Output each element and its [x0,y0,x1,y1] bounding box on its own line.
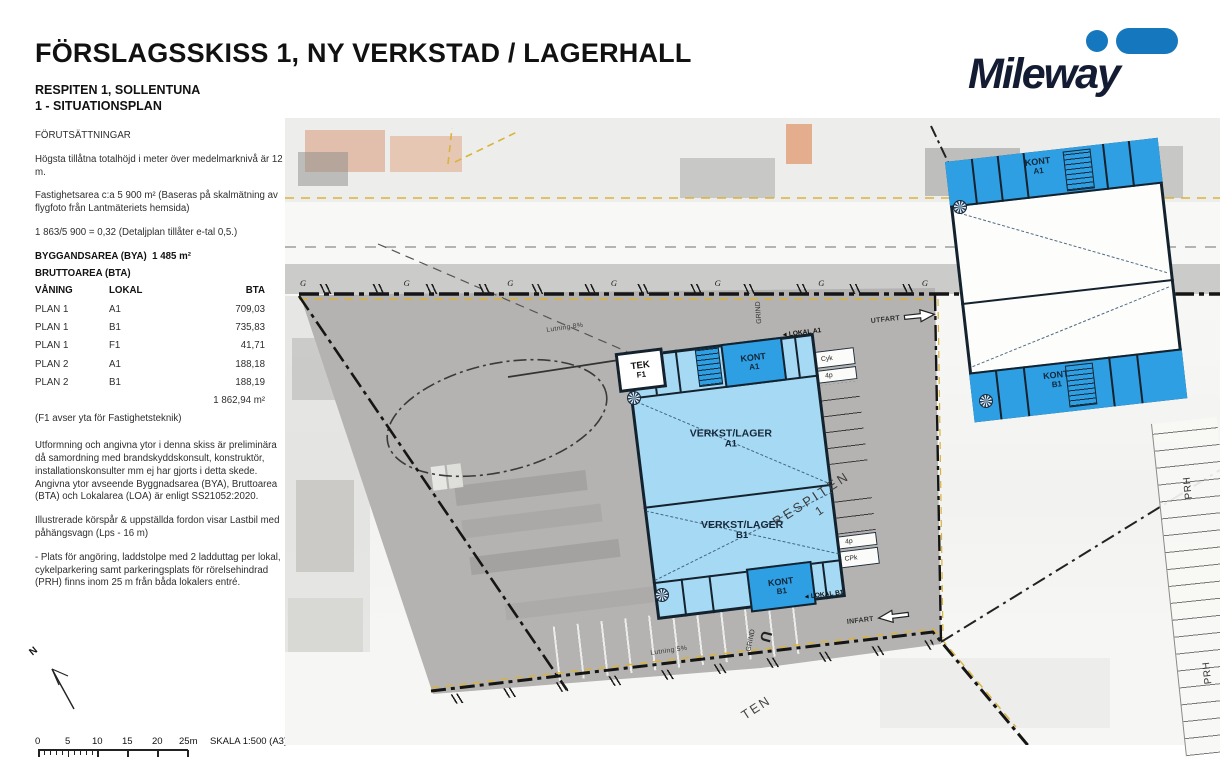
cell [109,395,173,408]
sheet-name: 1 - SITUATIONSPLAN [35,99,200,115]
g-mark: G [300,278,306,288]
cell: 41,71 [173,340,265,353]
note-disclaimer: Utformning och angivna ytor i denna skis… [35,440,287,504]
logo-dot-icon [1086,30,1108,52]
cell: PLAN 2 [35,359,109,372]
cyk-label: Cyk [821,355,833,363]
scale-tick-label: 5 [65,736,70,747]
bya-value: 1 485 m² [152,251,191,262]
scale-tick-label: 15 [122,736,133,747]
building-main: KONT A1 TEK F1 VERKST/LAGER A1 VERKST/LA… [625,333,846,620]
scale-bar-tick [38,750,40,757]
hall-unit: B1 [647,531,837,541]
prh-label: PRH [1182,476,1195,500]
lokal-arrow-icon: ◄ [803,593,810,601]
g-mark: G [922,278,928,288]
bya-label: BYGGANDSAREA (BYA) [35,251,147,262]
cpk-label: CPk [844,554,858,563]
note-parking: - Plats för angöring, laddstolpe med 2 l… [35,552,287,590]
table-total-row: 1 862,94 m² [35,395,287,408]
stair-symbol [695,347,723,388]
prh-label: PRH [1201,661,1214,685]
cell: B1 [109,322,173,335]
hall-unit: A1 [636,440,826,450]
utfart-label: UTFART [870,314,900,324]
col-vaning: VÅNING [35,285,109,298]
cell: F1 [109,340,173,353]
area-table-header: VÅNING LOKAL BTA [35,285,287,298]
hall-a1-label: VERKST/LAGER A1 [636,428,826,451]
project-name: RESPITEN 1, SOLLENTUNA [35,83,200,99]
table-row: PLAN 1A1709,03 [35,304,287,317]
g-mark: G [404,278,410,288]
subtitle-block: RESPITEN 1, SOLLENTUNA 1 - SITUATIONSPLA… [35,83,200,114]
note-etal: 1 863/5 900 = 0,32 (Detaljplan tillåter … [35,227,287,240]
scale-bar-tick [68,750,70,757]
g-mark: G [818,278,824,288]
col-bta: BTA [173,285,265,298]
p4-label: 4p [845,538,853,546]
cell: PLAN 1 [35,304,109,317]
cell: A1 [109,304,173,317]
column-symbol-icon [979,394,993,408]
notes-panel: FÖRUTSÄTTNINGAR Högsta tillåtna totalhöj… [35,130,287,601]
bta-heading: BRUTTOAREA (BTA) [35,268,287,281]
cell: 735,83 [173,322,265,335]
g-mark: G [507,278,513,288]
building-entresol: KONT A1 KONT B1 [945,138,1187,423]
p4-label: 4p [825,372,833,380]
fence-g-marks: GGGGGGG [300,278,928,288]
lokal-arrow-icon: ◄ [781,331,788,339]
scale-tick-label: 25m [179,736,197,747]
scale-bar-tick [187,750,189,757]
cell: 188,18 [173,359,265,372]
page-title: FÖRSLAGSSKISS 1, NY VERKSTAD / LAGERHALL [35,38,692,69]
column-symbol-icon [655,588,669,602]
company-logo: Mileway [968,24,1180,106]
notes-heading: FÖRUTSÄTTNINGAR [35,130,287,143]
table-row: PLAN 1F141,71 [35,340,287,353]
cell: PLAN 1 [35,322,109,335]
kont-a1-room: KONT A1 [720,337,787,388]
scale-bar-tick [97,750,99,757]
cell [35,395,109,408]
cell: B1 [109,377,173,390]
scale-tick-label: 20 [152,736,163,747]
area-table: VÅNING LOKAL BTA PLAN 1A1709,03 PLAN 1B1… [35,285,287,408]
drawing-sheet: FÖRSLAGSSKISS 1, NY VERKSTAD / LAGERHALL… [0,0,1220,764]
total-value: 1 862,94 m² [173,395,265,408]
column-symbol-icon [627,391,641,405]
cell: A1 [109,359,173,372]
table-row: PLAN 2A1188,18 [35,359,287,372]
note-height: Högsta tillåtna totalhöjd i meter över m… [35,154,287,180]
unit-label: A1 [749,362,760,372]
table-row: PLAN 1B1735,83 [35,322,287,335]
g-mark: G [611,278,617,288]
scale-label: SKALA 1:500 (A3) [210,736,287,747]
unit-label: F1 [636,370,646,379]
scale-bar-tick [157,750,159,757]
table-footnote: (F1 avser yta för Fastighetsteknik) [35,413,287,426]
note-area: Fastighetsarea c:a 5 900 m² (Baseras på … [35,190,287,216]
table-row: PLAN 2B1188,19 [35,377,287,390]
column-symbol-icon [953,200,967,214]
bya-line: BYGGANDSAREA (BYA) 1 485 m² [35,251,287,264]
site-plan: GGGGGGG PRH PRH Cyk 4p ELS ELS ELS ELS 4… [285,118,1220,745]
g-mark: G [715,278,721,288]
logo-wordmark: Mileway [968,50,1119,99]
scale-bar-tick [127,750,129,757]
scale-tick-label: 0 [35,736,40,747]
tek-room: TEK F1 [615,347,668,393]
infart-label: INFART [846,615,874,625]
cell: 188,19 [173,377,265,390]
scale-tick-label: 10 [92,736,103,747]
cell: 709,03 [173,304,265,317]
unit-label: B1 [776,587,787,597]
col-lokal: LOKAL [109,285,173,298]
logo-pill-icon [1116,28,1178,54]
cell: PLAN 2 [35,377,109,390]
note-vehicles: Illustrerade körspår & uppställda fordon… [35,515,287,541]
cell: PLAN 1 [35,340,109,353]
kont-b1-room: KONT B1 [746,561,817,613]
